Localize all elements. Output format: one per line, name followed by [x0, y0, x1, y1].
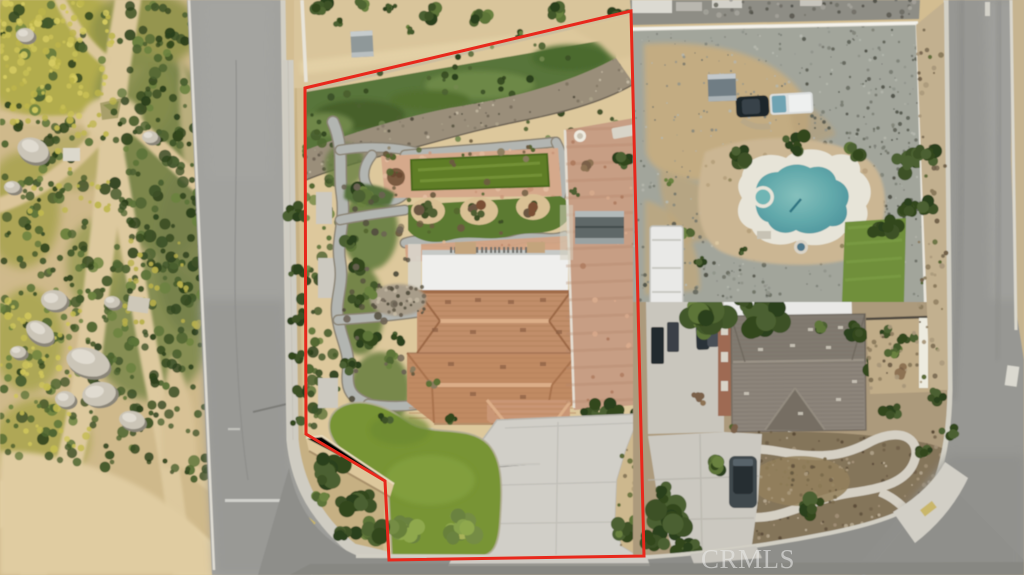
svg-text:CRMLS: CRMLS	[701, 544, 795, 574]
